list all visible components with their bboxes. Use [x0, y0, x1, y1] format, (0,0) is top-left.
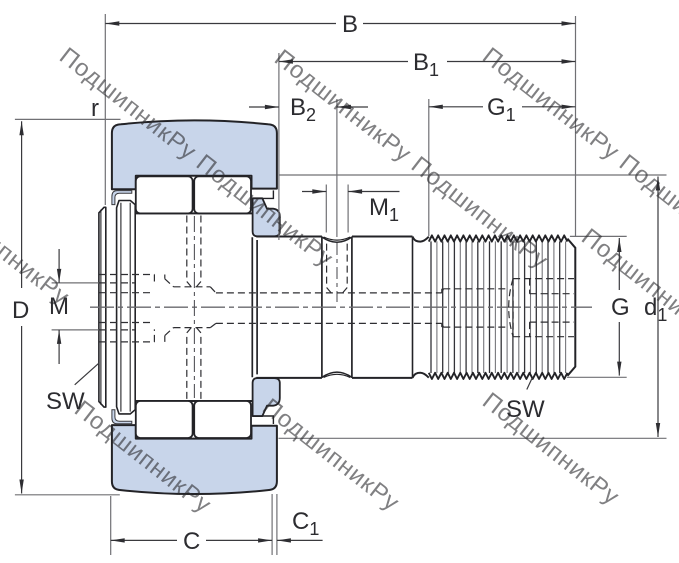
svg-text:B: B — [342, 11, 358, 38]
svg-text:D: D — [12, 297, 29, 324]
svg-text:r: r — [91, 95, 99, 122]
svg-text:G: G — [611, 294, 630, 321]
svg-text:C: C — [183, 528, 200, 555]
